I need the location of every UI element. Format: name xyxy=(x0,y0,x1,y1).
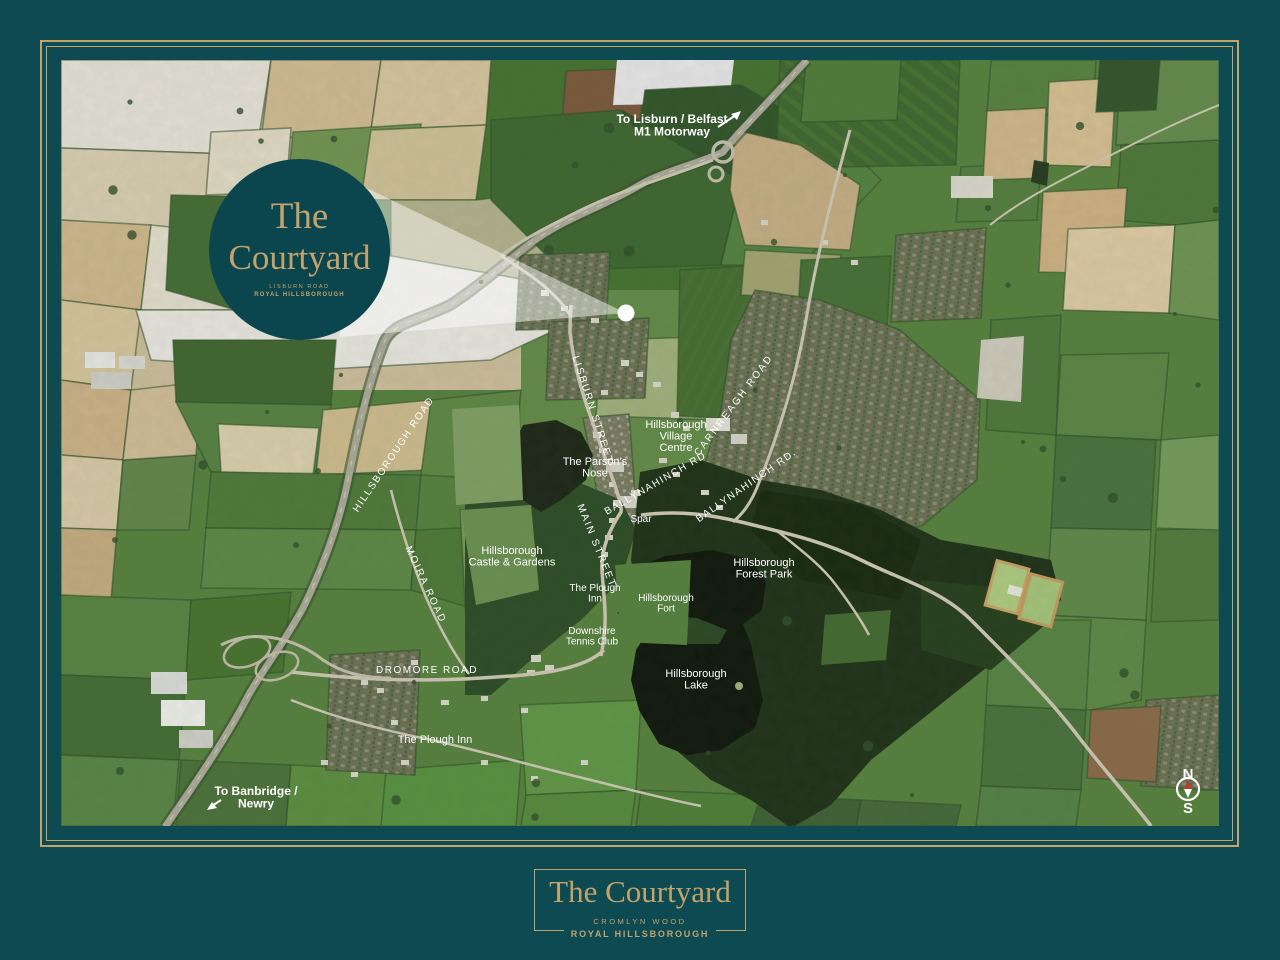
svg-text:Courtyard: Courtyard xyxy=(229,238,371,277)
svg-text:DROMORE ROAD: DROMORE ROAD xyxy=(376,665,478,676)
svg-text:Forest Park: Forest Park xyxy=(736,569,793,581)
svg-text:M1 Motorway: M1 Motorway xyxy=(634,125,710,139)
svg-text:Hillsborough: Hillsborough xyxy=(645,419,706,431)
svg-text:Inn: Inn xyxy=(588,594,602,605)
svg-text:The Parson’s: The Parson’s xyxy=(563,456,628,468)
svg-text:Castle & Gardens: Castle & Gardens xyxy=(469,557,556,569)
svg-text:The Plough: The Plough xyxy=(569,583,620,594)
svg-text:Hillsborough: Hillsborough xyxy=(665,668,726,680)
svg-text:Village: Village xyxy=(660,431,693,443)
svg-text:The: The xyxy=(271,196,329,237)
svg-text:Hillsborough: Hillsborough xyxy=(481,545,542,557)
svg-text:Centre: Centre xyxy=(659,442,692,454)
svg-text:Tennis Club: Tennis Club xyxy=(566,637,619,648)
svg-text:Newry: Newry xyxy=(238,797,274,811)
svg-text:S: S xyxy=(1183,800,1193,817)
svg-text:Downshire: Downshire xyxy=(568,626,616,637)
svg-text:The Plough Inn: The Plough Inn xyxy=(398,734,473,746)
svg-text:Hillsborough: Hillsborough xyxy=(638,593,694,604)
svg-text:LISBURN ROAD: LISBURN ROAD xyxy=(269,284,329,290)
svg-text:Nose: Nose xyxy=(582,468,608,480)
svg-text:Spar: Spar xyxy=(630,514,652,525)
svg-text:ROYAL HILLSBOROUGH: ROYAL HILLSBOROUGH xyxy=(254,292,344,298)
svg-text:Lake: Lake xyxy=(684,680,708,692)
svg-text:Fort: Fort xyxy=(657,604,675,615)
svg-text:Hillsborough: Hillsborough xyxy=(733,557,794,569)
